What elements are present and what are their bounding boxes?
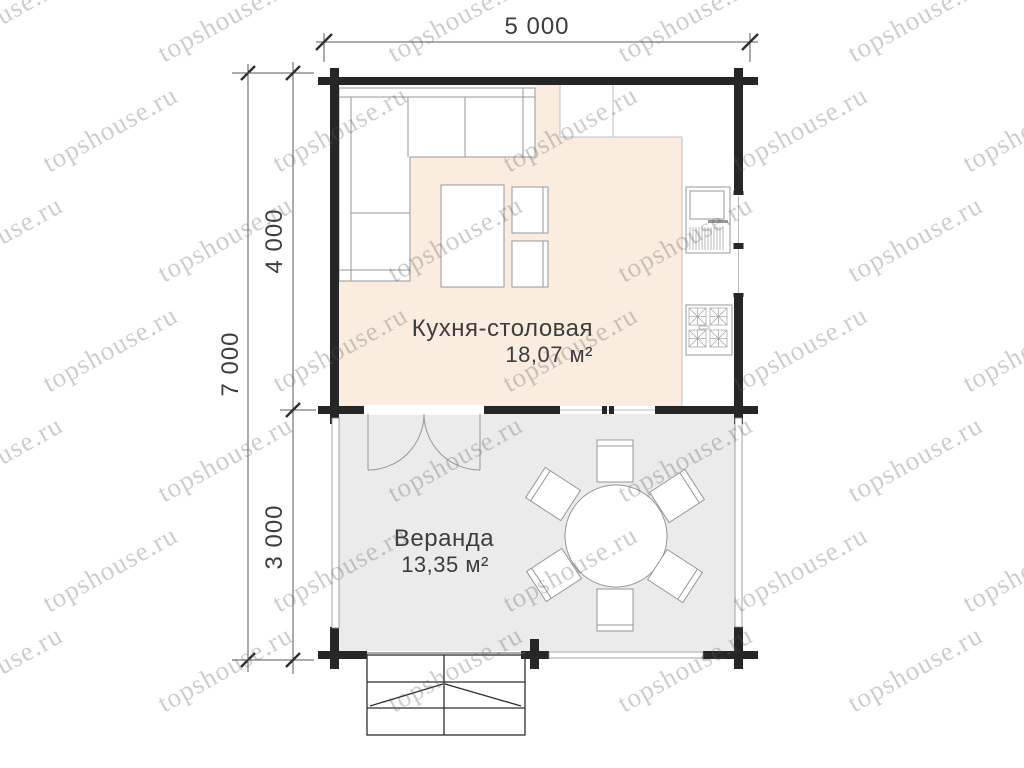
dimension-left-inner: 4 000 3 000 xyxy=(232,62,316,674)
middle-wall-window xyxy=(555,406,660,414)
dimension-label-veranda-depth: 3 000 xyxy=(261,504,288,569)
dimension-top: 5 000 xyxy=(316,13,758,62)
dimension-label-width: 5 000 xyxy=(504,13,569,40)
sink-unit xyxy=(686,187,730,253)
kitchen-room-name: Кухня-столовая xyxy=(412,315,593,342)
chair xyxy=(597,589,633,631)
veranda-railing-right xyxy=(735,418,742,627)
veranda-railing-bottom xyxy=(549,652,703,658)
entry-stairs xyxy=(367,655,525,735)
pouf-chair xyxy=(512,187,548,233)
right-wall-window xyxy=(734,191,744,297)
dimension-label-kitchen-depth: 4 000 xyxy=(261,208,288,273)
kitchen-room-area: 18,07 м² xyxy=(505,342,593,367)
veranda-label: Веранда 13,35 м² xyxy=(394,525,494,577)
top-wall xyxy=(318,77,758,85)
door-opening xyxy=(364,405,484,415)
stove xyxy=(686,305,732,355)
pouf-chair xyxy=(512,241,548,287)
entry-post xyxy=(530,639,539,669)
bottom-wall-right xyxy=(703,651,758,659)
dimension-left-outer: 7 000 xyxy=(217,64,255,672)
floor-plan-page: 5 000 7 000 4 000 3 000 Кухня-столовая 1… xyxy=(0,0,1024,768)
chair xyxy=(597,440,633,482)
veranda-room-name: Веранда xyxy=(394,525,494,552)
veranda-room-area: 13,35 м² xyxy=(401,552,489,577)
corner-post xyxy=(330,627,339,669)
corner-post xyxy=(734,627,743,669)
coffee-table xyxy=(441,185,504,287)
floor-plan-drawing: 5 000 7 000 4 000 3 000 Кухня-столовая 1… xyxy=(0,0,1024,768)
left-wall xyxy=(330,68,339,424)
round-dining-table xyxy=(565,485,667,587)
dimension-label-total-height: 7 000 xyxy=(217,331,244,396)
veranda-railing-left xyxy=(332,418,339,628)
bottom-wall-left xyxy=(318,651,367,659)
